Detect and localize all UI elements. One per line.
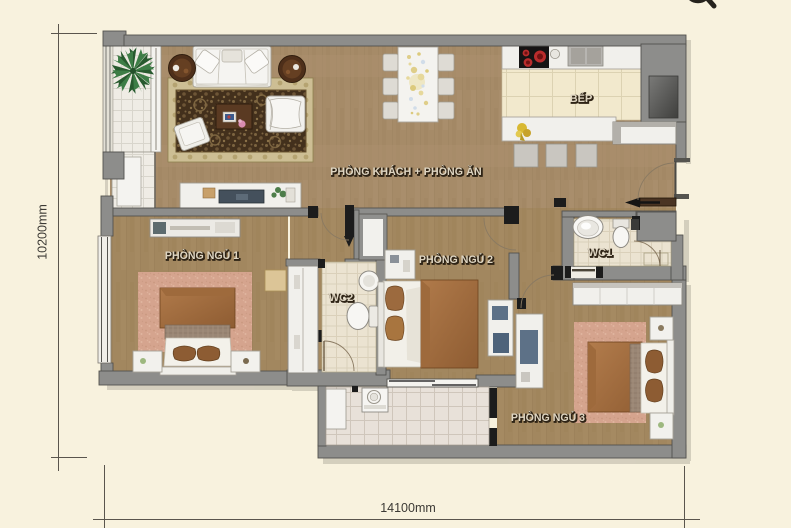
svg-text:PHÒNG NGỦ 3: PHÒNG NGỦ 3 <box>511 411 585 424</box>
svg-text:PHÒNG NGỦ 1: PHÒNG NGỦ 1 <box>165 249 239 262</box>
svg-text:PHÒNG KHÁCH + PHÒNG ĂN: PHÒNG KHÁCH + PHÒNG ĂN <box>330 165 481 178</box>
svg-text:10200mm: 10200mm <box>36 204 50 260</box>
svg-text:WC1: WC1 <box>588 247 612 259</box>
svg-text:PHÒNG NGỦ 2: PHÒNG NGỦ 2 <box>419 253 493 266</box>
svg-text:BẾP: BẾP <box>570 92 593 105</box>
svg-text:WC2: WC2 <box>329 292 353 304</box>
svg-text:14100mm: 14100mm <box>380 501 436 515</box>
